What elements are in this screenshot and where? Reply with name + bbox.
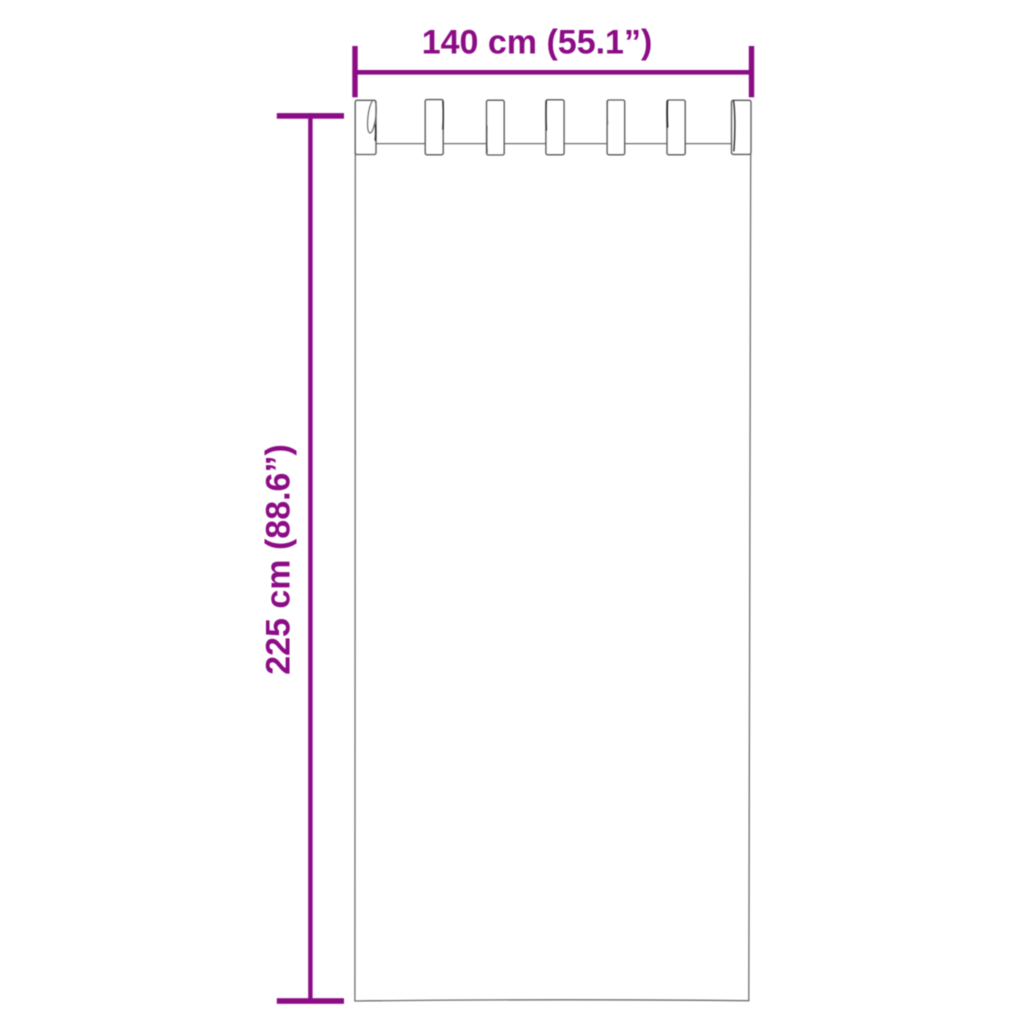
svg-text:140 cm (55.1”): 140 cm (55.1”) [422, 24, 653, 62]
svg-text:225 cm (88.6”): 225 cm (88.6”) [260, 444, 298, 675]
